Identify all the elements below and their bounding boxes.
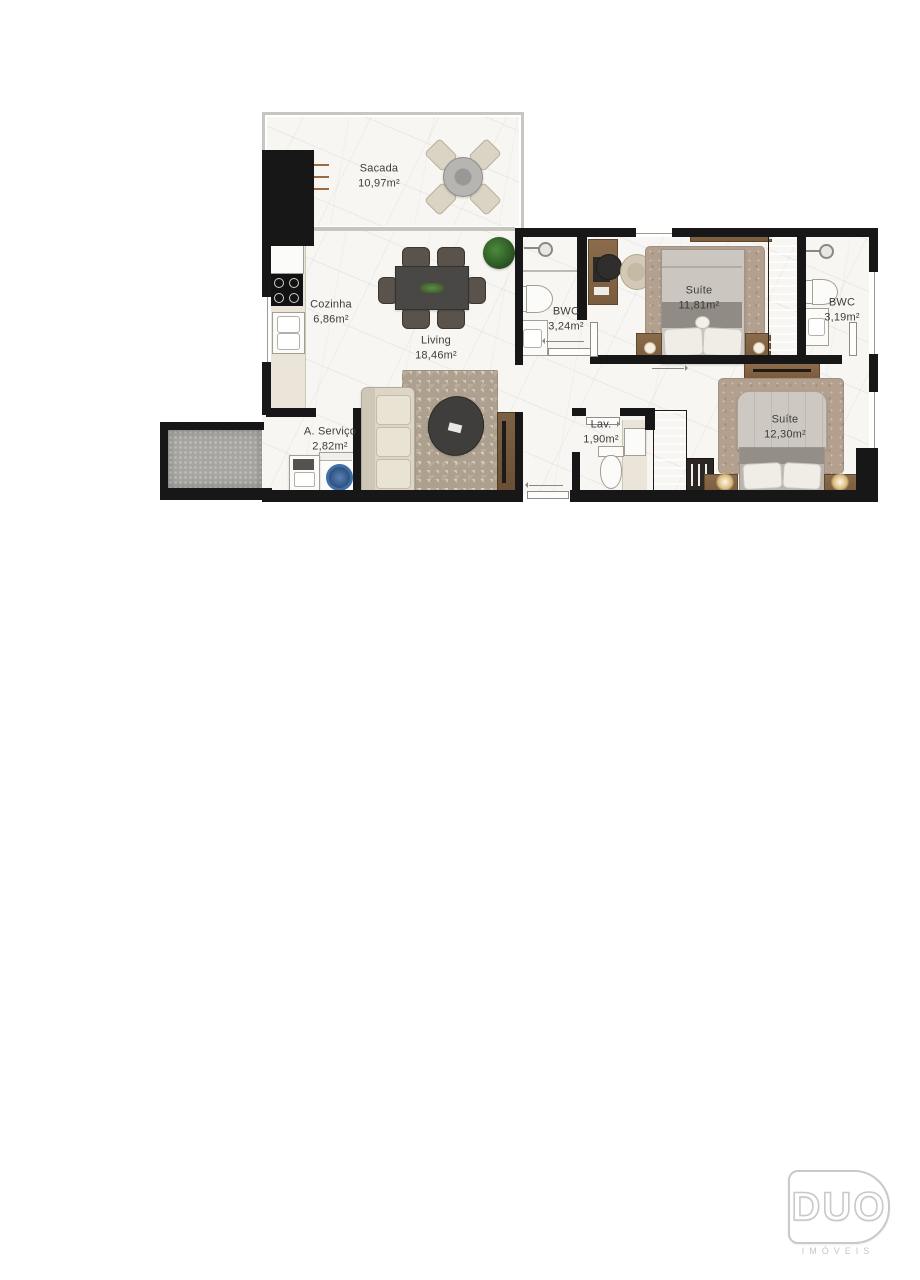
bed-pillow: [782, 462, 821, 490]
bed-flower: [695, 316, 710, 329]
wall-segment: [570, 490, 878, 502]
wall-segment: [262, 490, 523, 502]
dining-table: [395, 266, 469, 310]
room-name: Suíte: [764, 413, 806, 428]
wall-segment: [620, 408, 650, 416]
door-suite-1: [590, 322, 598, 357]
bed-pillow: [742, 462, 782, 490]
lamp: [753, 342, 765, 354]
shower-head-icon: [819, 244, 834, 259]
vanity-sink: [808, 318, 825, 336]
grill-skewer: [312, 164, 329, 166]
dining-chair: [402, 307, 430, 329]
shower-head-icon: [538, 242, 553, 257]
service-terrace-floor: [168, 430, 262, 488]
tub-bowl: [294, 472, 315, 487]
desk-paper: [594, 287, 609, 295]
glowing-lamp: [831, 473, 849, 491]
room-label-living: Living 18,46m²: [415, 334, 457, 365]
dining-chair: [437, 307, 465, 329]
balcony-sliding-door: [314, 226, 515, 230]
lav-sink: [624, 428, 646, 456]
wall-segment: [869, 228, 878, 272]
desk-chair: [596, 254, 622, 280]
entry-door: [527, 491, 569, 499]
sofa-cushion: [376, 395, 411, 425]
room-label-bwc-social: BWC 3,24m²: [548, 305, 583, 336]
bed-pillow: [702, 327, 742, 357]
grill-skewer: [312, 176, 329, 178]
burner: [274, 293, 284, 303]
window: [869, 272, 878, 354]
brand-tagline: IMÓVEIS: [786, 1246, 890, 1256]
tub-ledge: [293, 459, 314, 470]
laundry-tub: [289, 455, 320, 491]
room-name: Living: [415, 334, 457, 349]
room-label-lavabo: Lav. 1,90m²: [583, 418, 618, 449]
brand-logo-text: DUO: [792, 1185, 887, 1230]
room-name: Sacada: [358, 162, 400, 177]
room-area: 3,19m²: [824, 311, 859, 326]
room-area: 11,81m²: [679, 299, 720, 314]
wall-segment: [672, 228, 878, 237]
door-swing-arrow: [652, 368, 684, 369]
wall-segment: [590, 355, 797, 364]
door-swing-arrow: [529, 485, 563, 486]
sink-bowl: [277, 333, 300, 350]
room-area: 2,82m²: [304, 440, 356, 455]
wall-segment: [572, 408, 586, 416]
sofa: [361, 387, 415, 495]
dining-chair: [466, 277, 486, 304]
wall-segment: [160, 422, 264, 430]
sofa-back: [362, 388, 375, 494]
wall-segment: [572, 452, 580, 494]
wall-segment: [266, 408, 316, 417]
room-area: 1,90m²: [583, 433, 618, 448]
wall-segment: [797, 228, 806, 355]
wall-segment: [869, 354, 878, 392]
room-name: Cozinha: [310, 298, 352, 313]
sofa-cushion: [376, 459, 411, 489]
tv-screen: [753, 369, 811, 372]
sink-bowl: [277, 316, 300, 333]
room-area: 18,46m²: [415, 349, 457, 364]
armchair-seat: [627, 263, 645, 281]
plant: [483, 237, 515, 269]
room-area: 6,86m²: [310, 313, 352, 328]
lamp: [644, 342, 656, 354]
door-bwc-suite: [849, 322, 857, 356]
room-name: BWC: [548, 305, 583, 320]
room-name: Lav.: [583, 418, 618, 433]
shoe-slot: [691, 464, 693, 486]
bed-blanket: [740, 448, 824, 464]
burner: [289, 293, 299, 303]
room-label-cozinha: Cozinha 6,86m²: [310, 298, 352, 329]
shower-glass: [516, 270, 577, 272]
room-name: Suíte: [679, 284, 720, 299]
door-swing-arrow: [546, 341, 584, 342]
burner: [289, 278, 299, 288]
kitchen-sink: [272, 312, 305, 354]
washer-door: [326, 464, 353, 491]
room-area: 3,24m²: [548, 320, 583, 335]
coffee-table-book: [448, 422, 463, 433]
wall-segment: [515, 228, 523, 365]
wall-segment: [515, 412, 523, 492]
bed-pillow: [663, 327, 703, 357]
window: [262, 297, 271, 362]
barbecue-counter-block: [262, 150, 314, 246]
shoe-slot: [698, 464, 700, 486]
table-centerpiece: [420, 283, 444, 293]
suite2-bed-head: [739, 447, 825, 495]
duvet-fold: [662, 266, 742, 268]
brand-logo: DUO: [788, 1170, 890, 1244]
room-area: 10,97m²: [358, 177, 400, 192]
room-label-suite-2: Suíte 12,30m²: [764, 413, 806, 444]
toilet: [600, 455, 622, 489]
tv-screen: [502, 421, 506, 483]
room-name: BWC: [824, 296, 859, 311]
floor-plan-canvas: Sacada 10,97m² Cozinha 6,86m² Living 18,…: [0, 0, 920, 1280]
cooktop: [270, 274, 303, 306]
suite2-dresser: [744, 363, 820, 379]
wall-segment: [160, 488, 272, 500]
room-label-bwc-suite: BWC 3,19m²: [824, 296, 859, 327]
room-area: 12,30m²: [764, 428, 806, 443]
suite1-wardrobe: [768, 236, 798, 358]
room-label-suite-1: Suíte 11,81m²: [679, 284, 720, 315]
suite2-wardrobe: [653, 410, 687, 492]
room-label-area-servico: A. Serviço 2,82m²: [304, 425, 356, 456]
glowing-lamp: [716, 473, 734, 491]
wall-segment: [797, 355, 842, 364]
window: [636, 228, 672, 237]
sofa-cushion: [376, 427, 411, 457]
door-bwc-social: [548, 348, 592, 356]
washing-machine: [319, 452, 355, 492]
burner: [274, 278, 284, 288]
balcony-round-table: [443, 157, 483, 197]
grill-skewer: [312, 188, 329, 190]
room-name: A. Serviço: [304, 425, 356, 440]
room-label-sacada: Sacada 10,97m²: [358, 162, 400, 193]
window: [869, 392, 878, 448]
wall-segment: [515, 228, 636, 237]
